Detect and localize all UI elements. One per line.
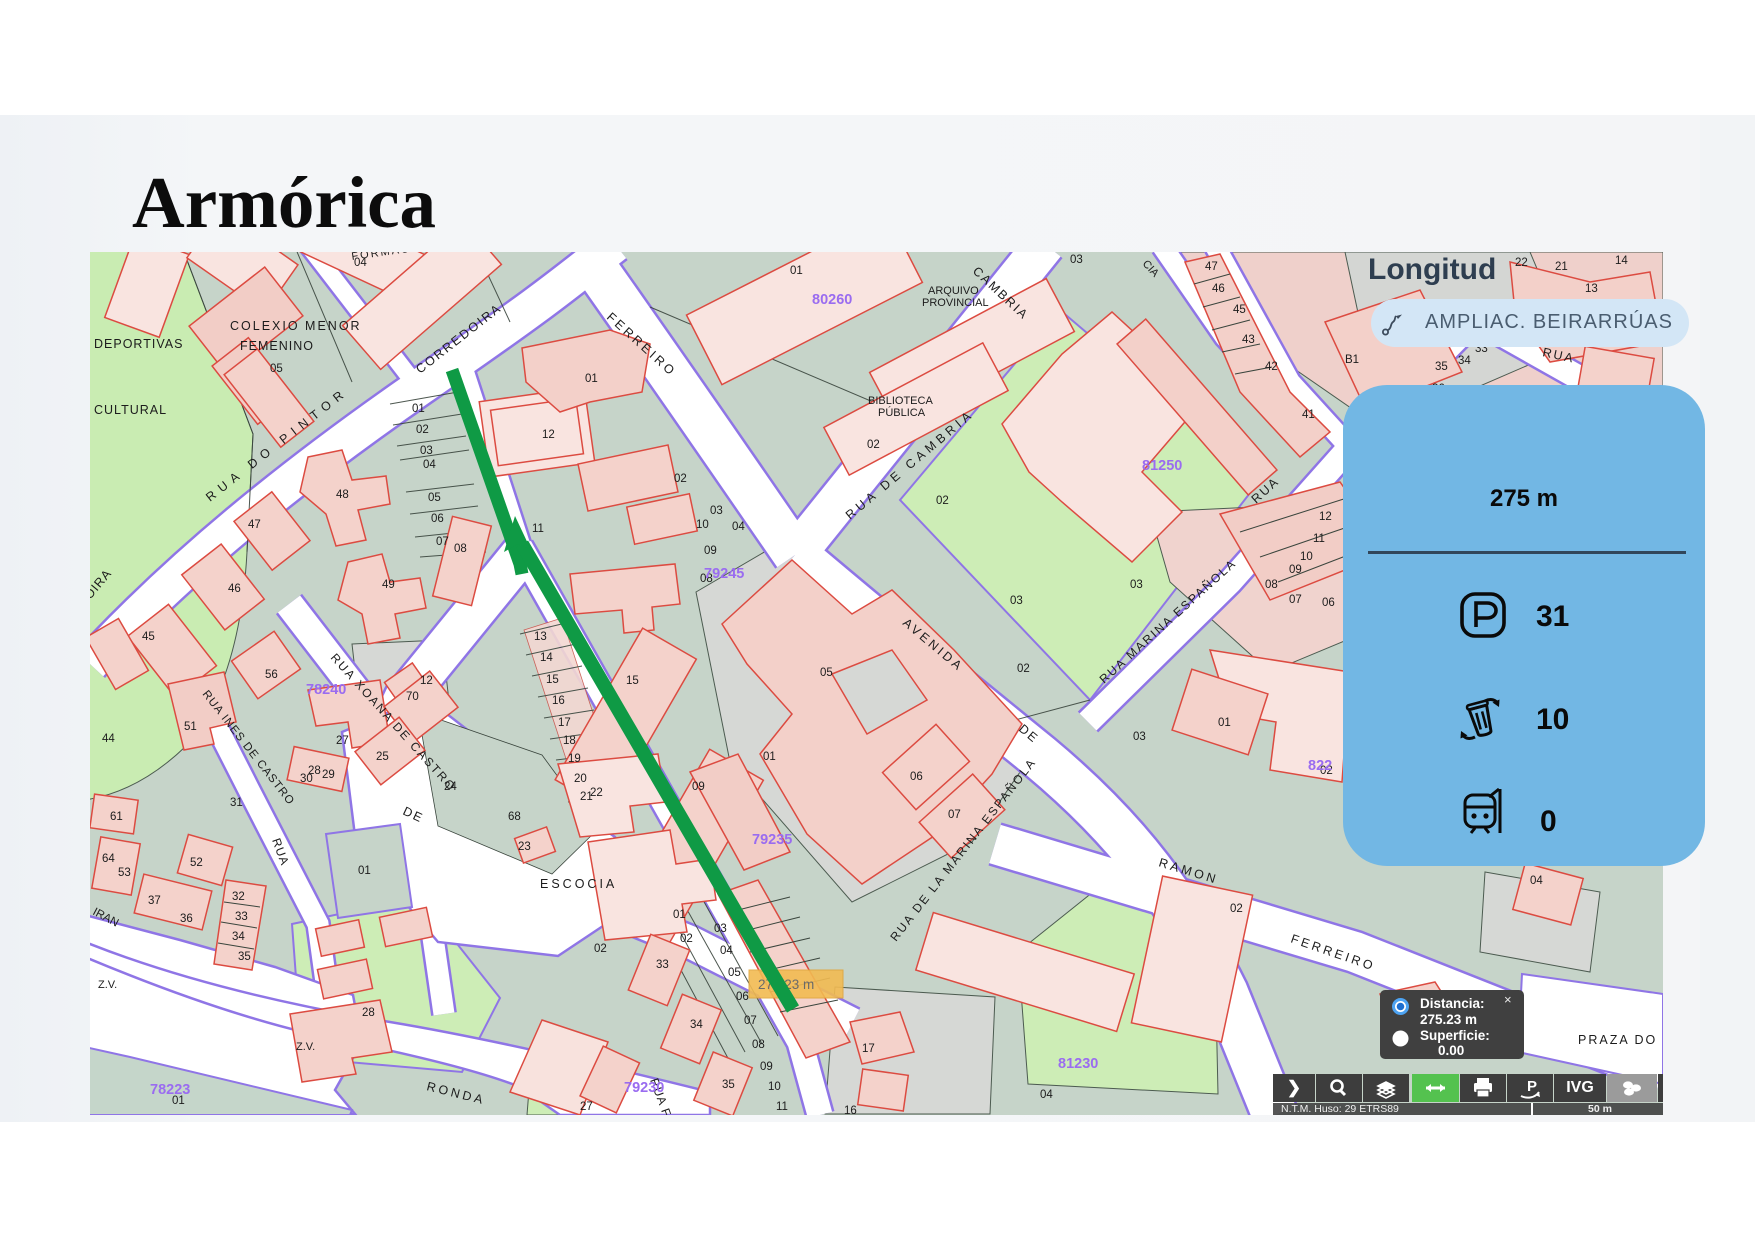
svg-text:12: 12 <box>420 675 433 687</box>
svg-text:22: 22 <box>1515 257 1528 269</box>
svg-text:14: 14 <box>1615 255 1628 267</box>
svg-text:CULTURAL: CULTURAL <box>94 403 167 417</box>
svg-text:31: 31 <box>230 797 243 809</box>
svg-text:02: 02 <box>1230 903 1243 915</box>
svg-text:14: 14 <box>540 652 553 664</box>
svg-text:24: 24 <box>444 781 457 793</box>
svg-text:79235: 79235 <box>752 832 792 848</box>
svg-text:20: 20 <box>574 773 587 785</box>
svg-text:16: 16 <box>552 695 565 707</box>
svg-text:35: 35 <box>238 951 251 963</box>
svg-text:08: 08 <box>454 543 467 555</box>
svg-text:35: 35 <box>1435 361 1448 373</box>
svg-text:05: 05 <box>728 967 741 979</box>
svg-text:78223: 78223 <box>150 1082 190 1098</box>
svg-text:06: 06 <box>431 513 444 525</box>
svg-text:02: 02 <box>1017 663 1030 675</box>
svg-text:09: 09 <box>1289 564 1302 576</box>
svg-text:01: 01 <box>763 751 776 763</box>
svg-text:03: 03 <box>1070 254 1083 266</box>
svg-text:02: 02 <box>680 933 693 945</box>
svg-text:15: 15 <box>546 674 559 686</box>
svg-text:30: 30 <box>300 773 313 785</box>
svg-text:44: 44 <box>102 733 115 745</box>
svg-text:04: 04 <box>1530 875 1543 887</box>
svg-text:17: 17 <box>862 1043 875 1055</box>
svg-text:79245: 79245 <box>704 566 744 582</box>
svg-text:04: 04 <box>720 945 733 957</box>
svg-text:11: 11 <box>776 1101 788 1113</box>
svg-text:02: 02 <box>594 943 607 955</box>
svg-text:46: 46 <box>228 583 241 595</box>
svg-text:03: 03 <box>420 445 433 457</box>
svg-text:01: 01 <box>412 403 425 415</box>
svg-text:04: 04 <box>732 521 745 533</box>
svg-text:03: 03 <box>1133 731 1146 743</box>
svg-text:09: 09 <box>704 545 717 557</box>
svg-text:25: 25 <box>376 751 389 763</box>
svg-text:45: 45 <box>142 631 155 643</box>
svg-text:79230: 79230 <box>624 1080 664 1096</box>
svg-text:15: 15 <box>626 675 639 687</box>
svg-text:27: 27 <box>336 735 349 747</box>
svg-text:09: 09 <box>760 1061 773 1073</box>
svg-text:01: 01 <box>790 265 803 277</box>
svg-text:06: 06 <box>1322 597 1335 609</box>
svg-text:56: 56 <box>265 669 278 681</box>
svg-text:53: 53 <box>118 867 131 879</box>
svg-text:13: 13 <box>1585 283 1598 295</box>
svg-text:16: 16 <box>844 1105 857 1115</box>
svg-text:46: 46 <box>1212 283 1225 295</box>
svg-text:07: 07 <box>1289 594 1302 606</box>
svg-text:05: 05 <box>270 363 283 375</box>
svg-text:02: 02 <box>416 424 429 436</box>
svg-text:03: 03 <box>1010 595 1023 607</box>
svg-text:10: 10 <box>1300 551 1313 563</box>
svg-text:34: 34 <box>1458 355 1471 367</box>
svg-text:ESCOCIA: ESCOCIA <box>540 877 617 891</box>
svg-text:37: 37 <box>148 895 161 907</box>
svg-text:08: 08 <box>752 1039 765 1051</box>
svg-text:12: 12 <box>1319 511 1332 523</box>
svg-text:23: 23 <box>518 841 531 853</box>
svg-text:70: 70 <box>406 691 419 703</box>
svg-text:64: 64 <box>102 853 115 865</box>
svg-text:35: 35 <box>722 1079 735 1091</box>
svg-text:PÚBLICA: PÚBLICA <box>878 406 926 419</box>
svg-text:49: 49 <box>382 579 395 591</box>
svg-text:81230: 81230 <box>1058 1056 1098 1072</box>
svg-text:06: 06 <box>736 991 749 1003</box>
svg-text:07: 07 <box>948 809 961 821</box>
svg-text:34: 34 <box>690 1019 703 1031</box>
svg-text:13: 13 <box>534 631 547 643</box>
svg-text:02: 02 <box>867 439 880 451</box>
svg-text:51: 51 <box>184 721 197 733</box>
svg-text:02: 02 <box>674 473 687 485</box>
svg-text:68: 68 <box>508 811 521 823</box>
svg-text:04: 04 <box>1040 1089 1053 1101</box>
svg-text:33: 33 <box>656 959 669 971</box>
svg-text:08: 08 <box>1265 579 1278 591</box>
svg-text:29: 29 <box>322 769 335 781</box>
svg-text:01: 01 <box>1218 717 1231 729</box>
svg-text:04: 04 <box>354 257 367 269</box>
svg-text:05: 05 <box>820 667 833 679</box>
svg-text:01: 01 <box>585 373 598 385</box>
svg-text:61: 61 <box>110 811 123 823</box>
svg-text:01: 01 <box>358 865 371 877</box>
svg-text:07: 07 <box>436 536 449 548</box>
svg-text:43: 43 <box>1242 334 1255 346</box>
svg-text:36: 36 <box>180 913 193 925</box>
svg-text:11: 11 <box>532 523 544 535</box>
svg-text:Z.V.: Z.V. <box>296 1041 315 1053</box>
svg-text:21: 21 <box>580 791 593 803</box>
svg-text:52: 52 <box>190 857 203 869</box>
svg-text:09: 09 <box>692 781 705 793</box>
svg-text:10: 10 <box>696 519 709 531</box>
svg-text:28: 28 <box>362 1007 375 1019</box>
svg-text:81250: 81250 <box>1142 458 1182 474</box>
svg-text:80260: 80260 <box>812 292 852 308</box>
svg-text:PRAZA DO: PRAZA DO <box>1578 1033 1657 1047</box>
svg-text:27: 27 <box>580 1101 593 1113</box>
svg-text:48: 48 <box>336 489 349 501</box>
svg-text:DEPORTIVAS: DEPORTIVAS <box>94 337 183 351</box>
svg-text:ARQUIVO: ARQUIVO <box>928 285 979 297</box>
svg-text:11: 11 <box>1313 533 1325 545</box>
svg-text:47: 47 <box>1205 261 1218 273</box>
svg-text:05: 05 <box>428 492 441 504</box>
svg-text:B1: B1 <box>1345 354 1359 366</box>
svg-text:41: 41 <box>1302 409 1315 421</box>
svg-text:18: 18 <box>563 735 576 747</box>
svg-text:42: 42 <box>1265 361 1278 373</box>
svg-text:03: 03 <box>714 923 727 935</box>
svg-text:01: 01 <box>673 909 686 921</box>
svg-text:07: 07 <box>744 1015 757 1027</box>
svg-text:04: 04 <box>423 459 436 471</box>
svg-text:P: P <box>1527 1078 1537 1095</box>
svg-text:PROVINCIAL: PROVINCIAL <box>922 297 989 309</box>
svg-text:Z.V.: Z.V. <box>98 979 117 991</box>
svg-text:02: 02 <box>936 495 949 507</box>
svg-text:47: 47 <box>248 519 261 531</box>
svg-text:32: 32 <box>232 891 245 903</box>
svg-text:822: 822 <box>1308 758 1332 774</box>
svg-text:34: 34 <box>232 931 245 943</box>
svg-text:03: 03 <box>1130 579 1143 591</box>
svg-text:FEMENINO: FEMENINO <box>240 339 314 353</box>
svg-text:COLEXIO MENOR: COLEXIO MENOR <box>230 319 362 333</box>
svg-text:03: 03 <box>710 505 723 517</box>
svg-text:33: 33 <box>235 911 248 923</box>
svg-text:12: 12 <box>542 429 555 441</box>
svg-text:45: 45 <box>1233 304 1246 316</box>
svg-text:BIBLIOTECA: BIBLIOTECA <box>868 395 933 407</box>
svg-text:78240: 78240 <box>306 682 346 698</box>
svg-text:06: 06 <box>910 771 923 783</box>
svg-text:21: 21 <box>1555 261 1568 273</box>
svg-text:19: 19 <box>568 753 581 765</box>
svg-text:10: 10 <box>768 1081 781 1093</box>
svg-text:17: 17 <box>558 717 571 729</box>
